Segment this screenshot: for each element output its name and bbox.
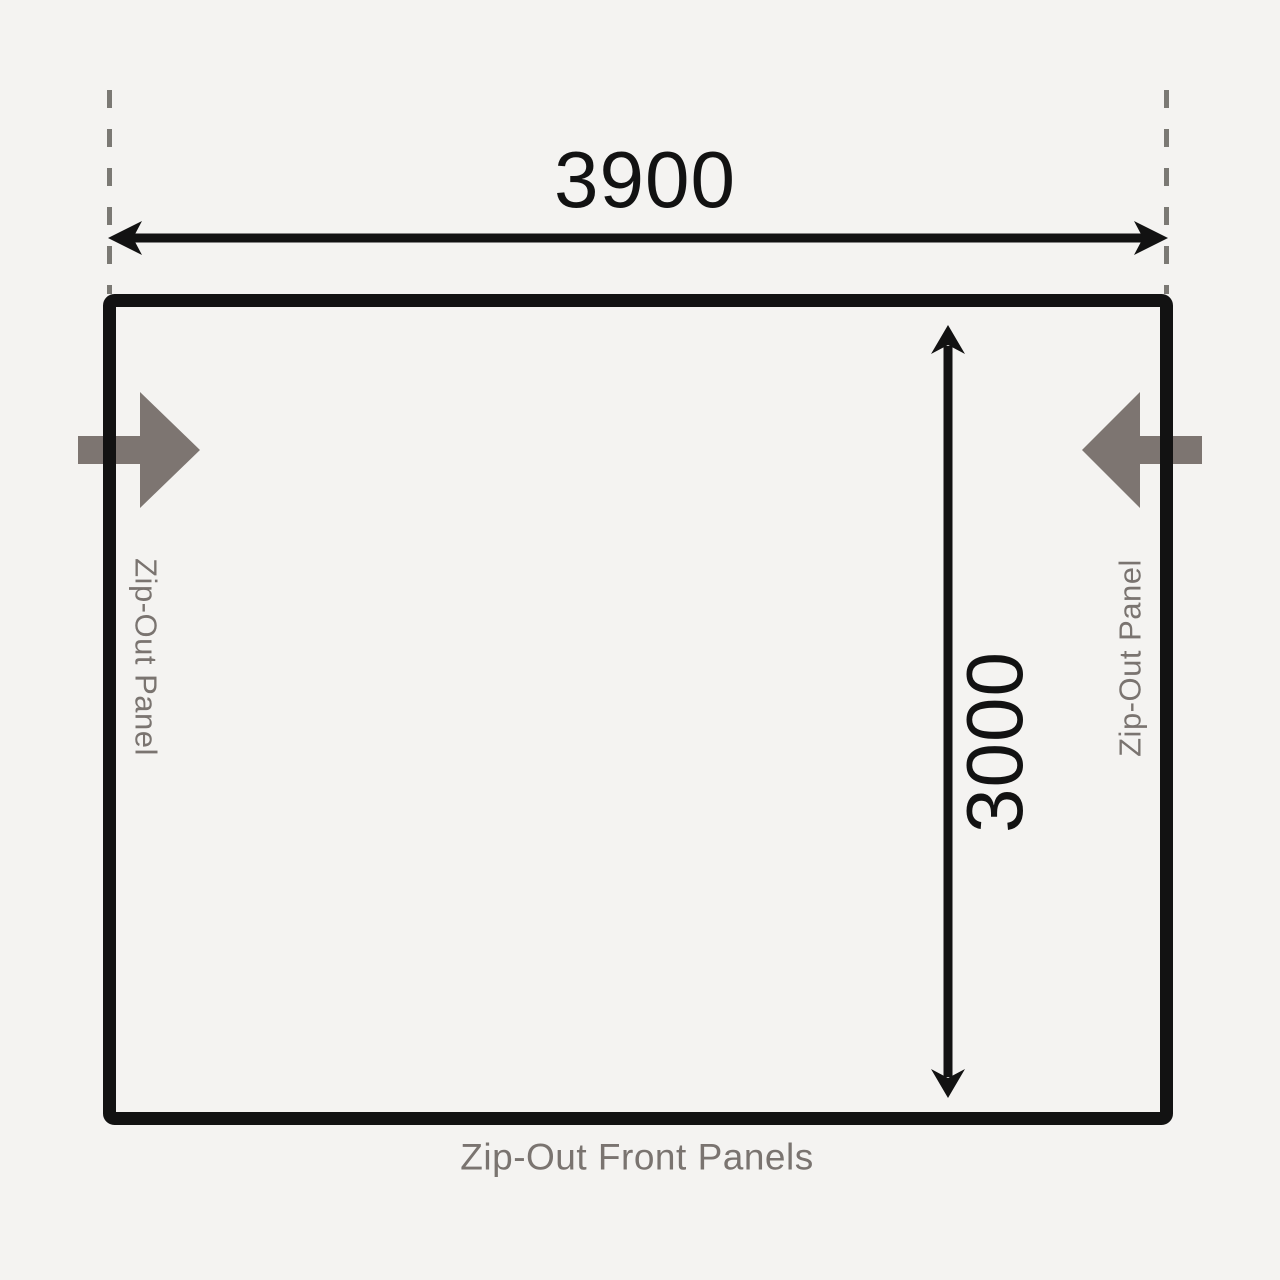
width-dimension-value: 3900	[554, 140, 736, 220]
zip-out-arrow-left-icon	[1082, 392, 1202, 508]
awning-floorplan-diagram: 3900 3000 Zip-Out Panel Zip-Out Panel Zi…	[0, 0, 1280, 1280]
right-zip-out-panel-label: Zip-Out Panel	[1115, 559, 1146, 757]
zip-out-arrow-right-icon	[78, 392, 200, 508]
depth-dimension-value: 3000	[955, 651, 1035, 833]
front-panels-label: Zip-Out Front Panels	[460, 1139, 813, 1176]
left-zip-out-panel-label: Zip-Out Panel	[131, 558, 162, 756]
